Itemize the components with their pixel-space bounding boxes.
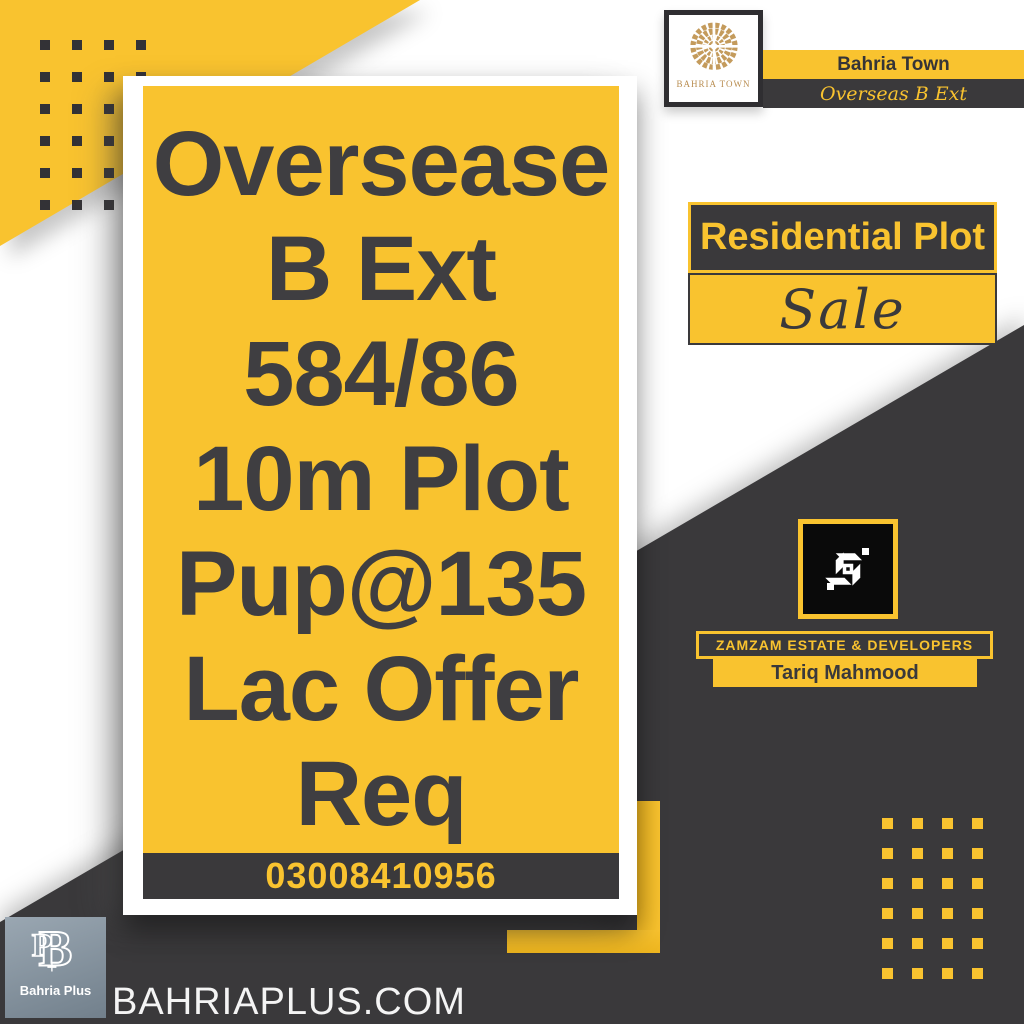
website-text: BAHRIAPLUS.COM [112,981,466,1024]
agency-logo-box [798,519,898,619]
svg-text:+: + [46,957,57,978]
bahria-plus-logo-box: B P + Bahria Plus [5,917,106,1018]
brand-name-bar: Bahria Town [763,50,1024,79]
property-poster: Oversease B Ext 584/86 10m Plot Pup@135 … [0,0,1024,1024]
bahria-town-emblem-icon [686,20,742,76]
listing-type-badge: Residential Plot [688,202,997,273]
listing-detail-line: Oversease [143,112,619,217]
bahria-plus-monogram-icon: B P + [25,919,87,981]
listing-detail-line: B Ext [143,217,619,322]
agent-name-bar: Tariq Mahmood [713,659,977,687]
listing-card: Oversease B Ext 584/86 10m Plot Pup@135 … [123,76,637,915]
listing-detail-line: 584/86 [143,322,619,427]
brand-location-bar: Overseas B Ext [763,79,1024,108]
listing-detail-line: Lac Offer [143,637,619,742]
listing-detail-line: Pup@135 [143,532,619,637]
phone-number: 03008410956 [143,853,619,899]
listing-deal-badge: Sale [688,273,997,345]
listing-detail-line: 10m Plot [143,427,619,532]
bahria-plus-logo-caption: Bahria Plus [20,983,92,998]
yellow-accent-bar-horizontal [507,930,660,953]
bottom-right-dot-grid [882,818,983,979]
listing-card-body: Oversease B Ext 584/86 10m Plot Pup@135 … [143,86,619,853]
bahria-town-logo-box: BAHRIA TOWN [664,10,763,107]
listing-detail-line: Req [143,742,619,847]
agency-name-bar: ZAMZAM ESTATE & DEVELOPERS [696,631,993,659]
bahria-town-logo-caption: BAHRIA TOWN [677,79,751,89]
zamzam-monogram-icon [820,541,876,597]
